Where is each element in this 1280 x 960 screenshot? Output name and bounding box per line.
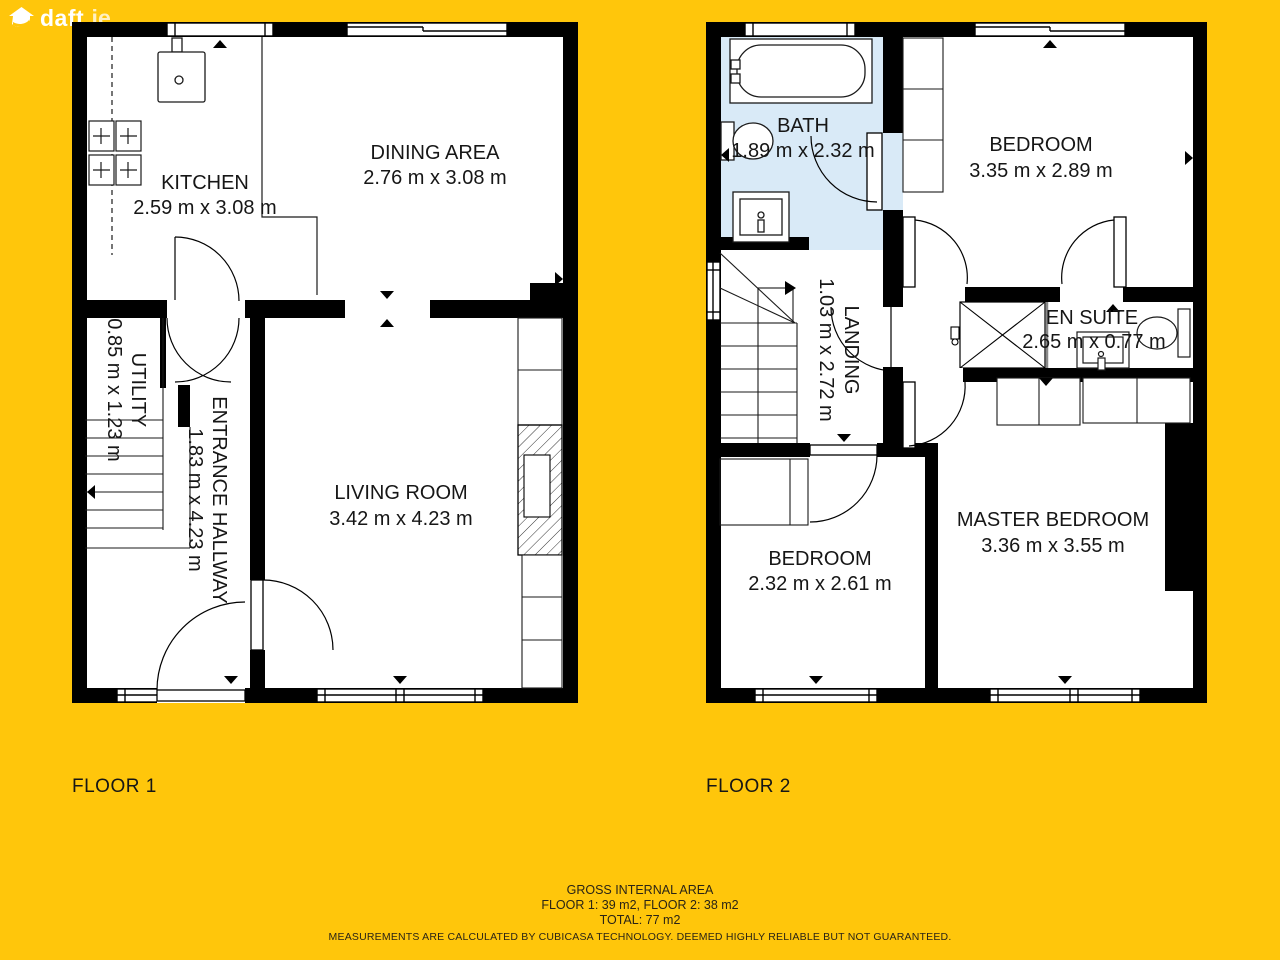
bath-sink-icon: [733, 192, 789, 242]
hallway-label: ENTRANCE HALLWAY: [208, 396, 230, 603]
total-area-line: TOTAL: 77 m2: [0, 913, 1280, 928]
dining-dims: 2.76 m x 3.08 m: [363, 167, 506, 189]
hallway-dims: 1.83 m x 4.23 m: [184, 428, 206, 571]
landing-label: LANDING: [840, 306, 862, 395]
bathtub-icon: [730, 39, 872, 103]
master-wardrobes: [997, 378, 1190, 425]
kitchen-label: KITCHEN: [161, 172, 249, 194]
floor-areas-line: FLOOR 1: 39 m2, FLOOR 2: 38 m2: [0, 898, 1280, 913]
utility-dims: 0.85 m x 1.23 m: [103, 318, 125, 461]
house-icon: [8, 6, 35, 31]
ensuite-label: EN SUITE: [1046, 307, 1138, 329]
floor1-plan: KITCHEN 2.59 m x 3.08 m DINING AREA 2.76…: [72, 22, 578, 703]
living-dims: 3.42 m x 4.23 m: [329, 508, 472, 530]
footer: GROSS INTERNAL AREA FLOOR 1: 39 m2, FLOO…: [0, 883, 1280, 943]
bedroom1-dims: 3.35 m x 2.89 m: [969, 160, 1112, 182]
dining-label: DINING AREA: [371, 142, 501, 164]
utility-label: UTILITY: [127, 353, 149, 427]
bedroom2-dims: 2.32 m x 2.61 m: [748, 573, 891, 595]
gross-internal-area-title: GROSS INTERNAL AREA: [0, 883, 1280, 898]
ensuite-dims: 2.65 m x 0.77 m: [1022, 331, 1165, 353]
chimney-breast: [518, 318, 562, 688]
living-label: LIVING ROOM: [334, 482, 467, 504]
master-label: MASTER BEDROOM: [957, 509, 1149, 531]
floor1-caption: FLOOR 1: [72, 776, 157, 798]
kitchen-dims: 2.59 m x 3.08 m: [133, 197, 276, 219]
floorplan-page: daft.ie: [0, 0, 1280, 960]
bedroom2-label: BEDROOM: [768, 548, 871, 570]
floor2-caption: FLOOR 2: [706, 776, 791, 798]
measurements-disclaimer: MEASUREMENTS ARE CALCULATED BY CUBICASA …: [0, 931, 1280, 943]
bath-label: BATH: [777, 115, 829, 137]
bedroom1-wardrobe: [903, 38, 943, 192]
bath-dims: 1.89 m x 2.32 m: [731, 140, 874, 162]
master-dims: 3.36 m x 3.55 m: [981, 535, 1124, 557]
bedroom1-label: BEDROOM: [989, 134, 1092, 156]
floor2-plan: BATH 1.89 m x 2.32 m BEDROOM 3.35 m x 2.…: [706, 22, 1207, 703]
landing-dims: 1.03 m x 2.72 m: [815, 278, 837, 421]
